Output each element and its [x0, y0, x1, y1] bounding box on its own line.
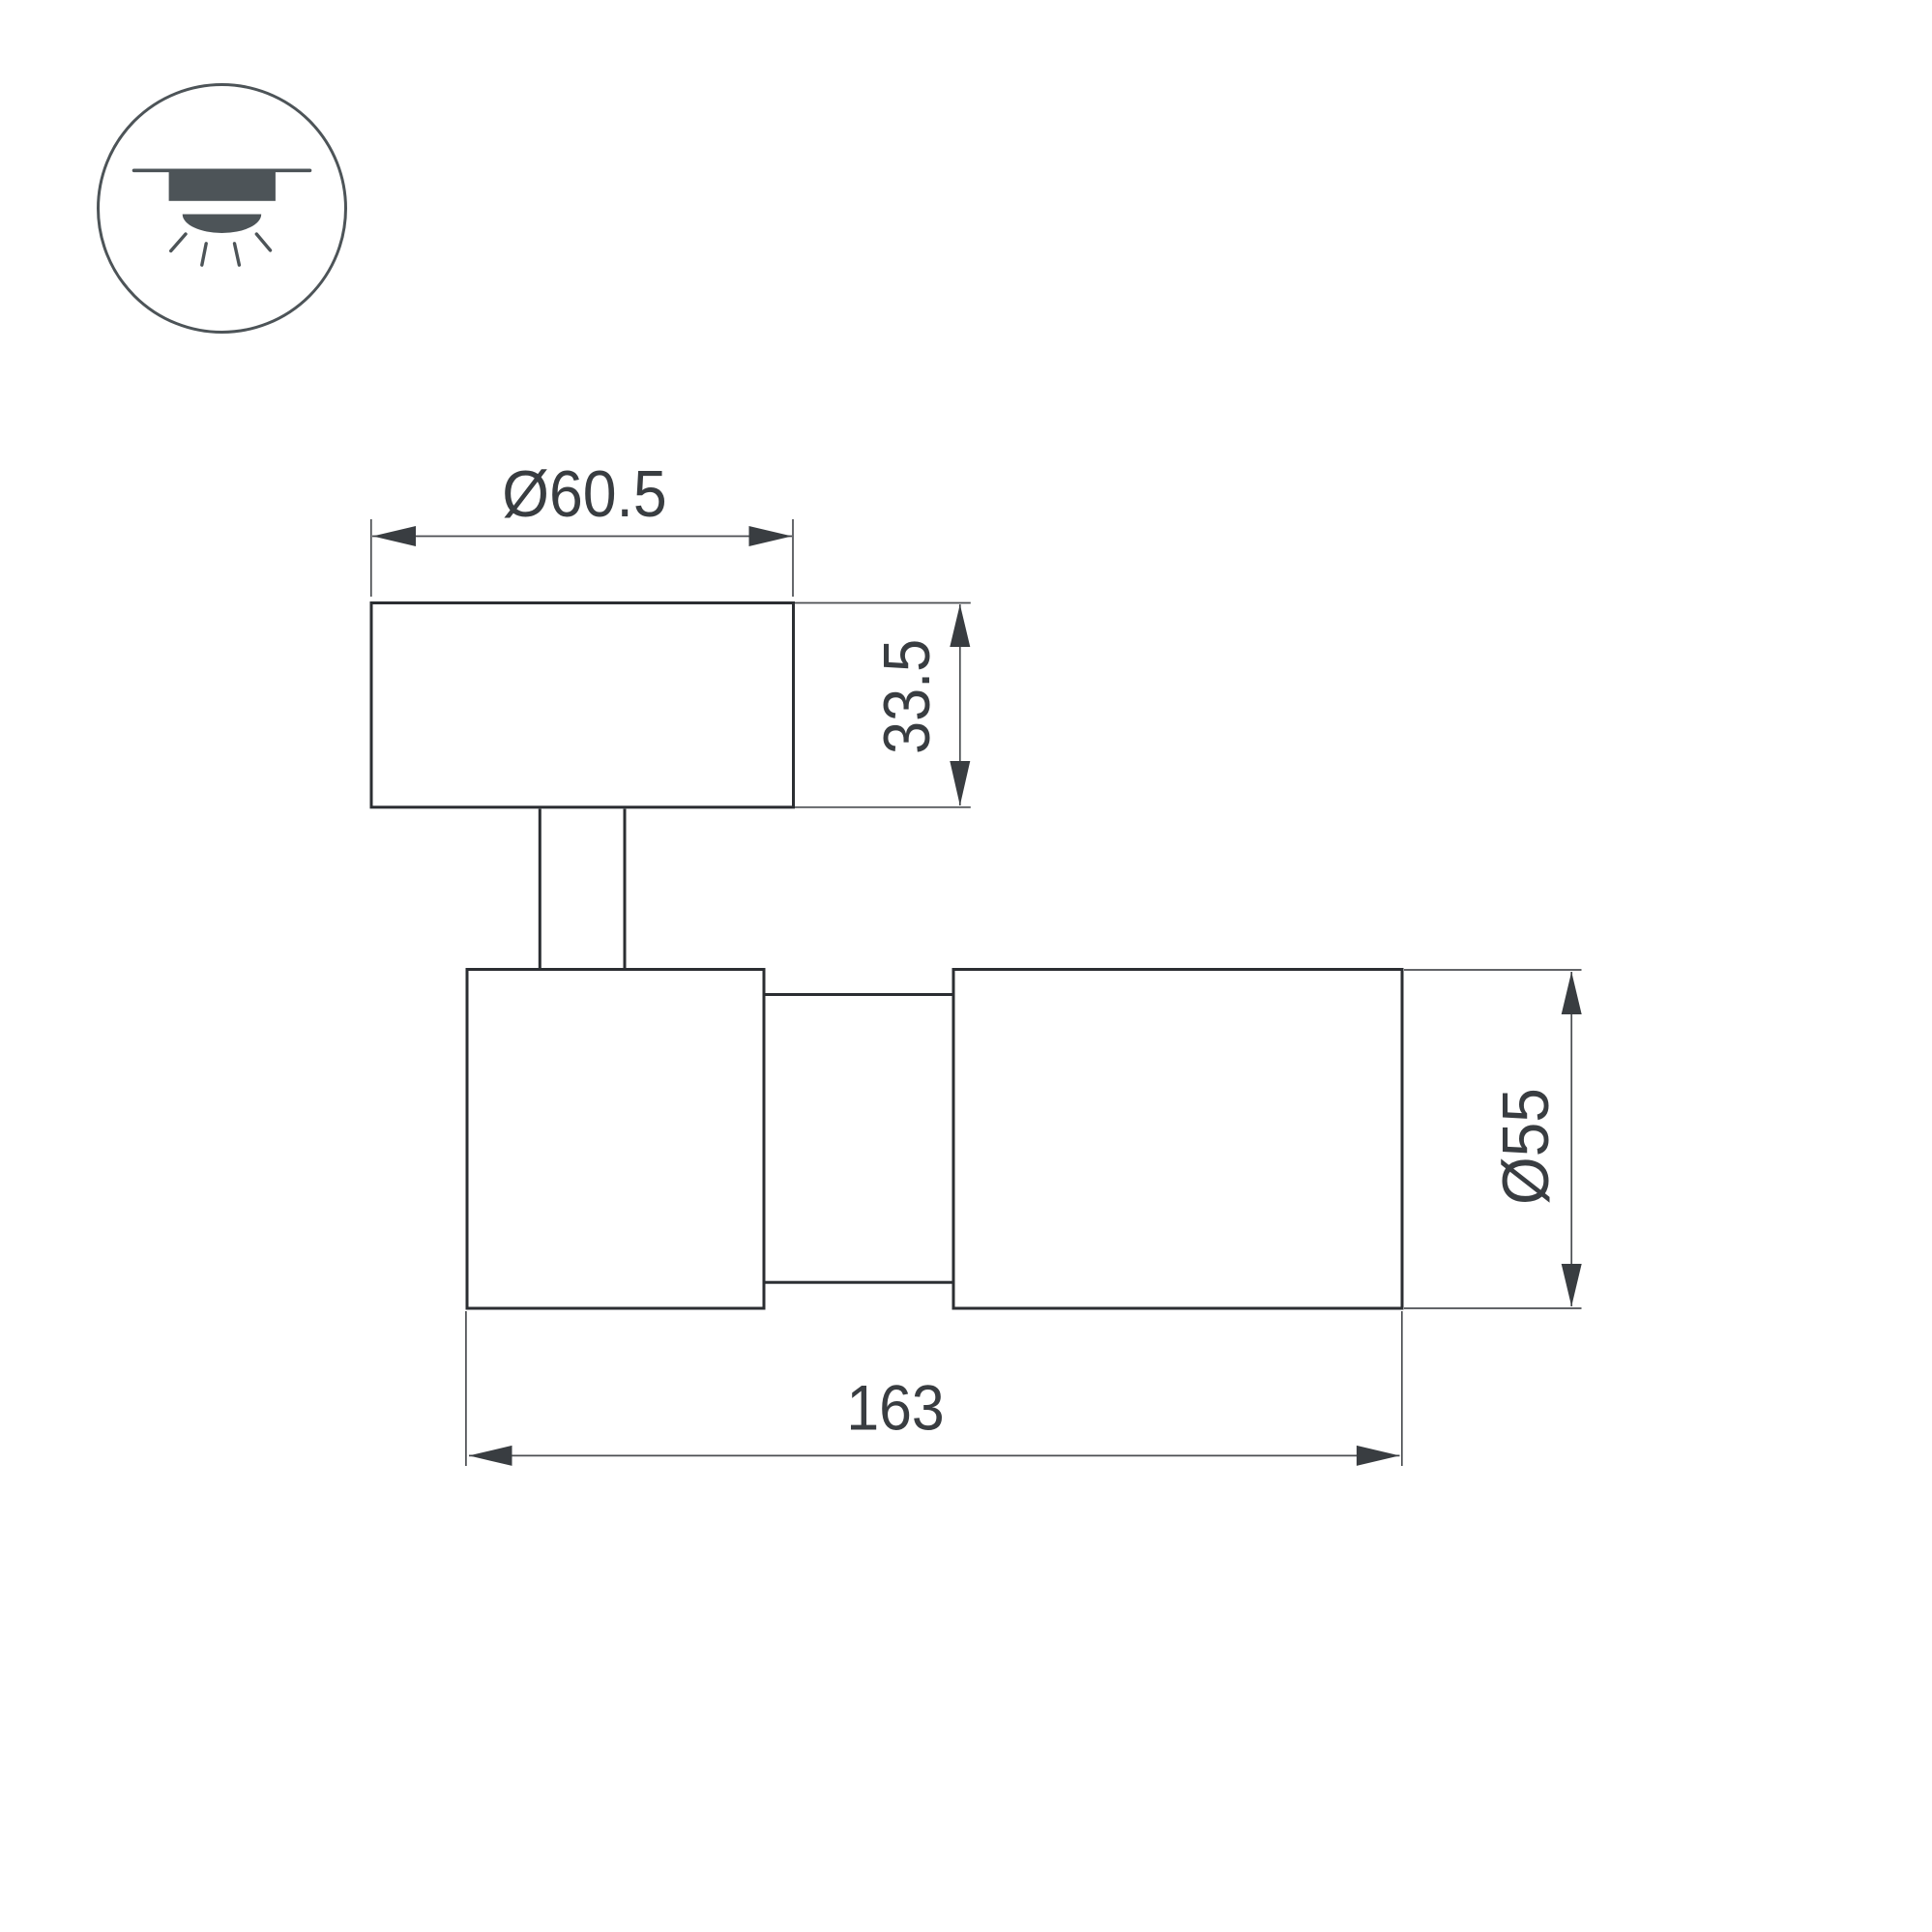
svg-text:163: 163	[846, 1373, 944, 1444]
svg-text:33.5: 33.5	[869, 639, 944, 754]
svg-text:Ø60.5: Ø60.5	[502, 457, 666, 531]
svg-text:Ø55: Ø55	[1488, 1088, 1562, 1205]
